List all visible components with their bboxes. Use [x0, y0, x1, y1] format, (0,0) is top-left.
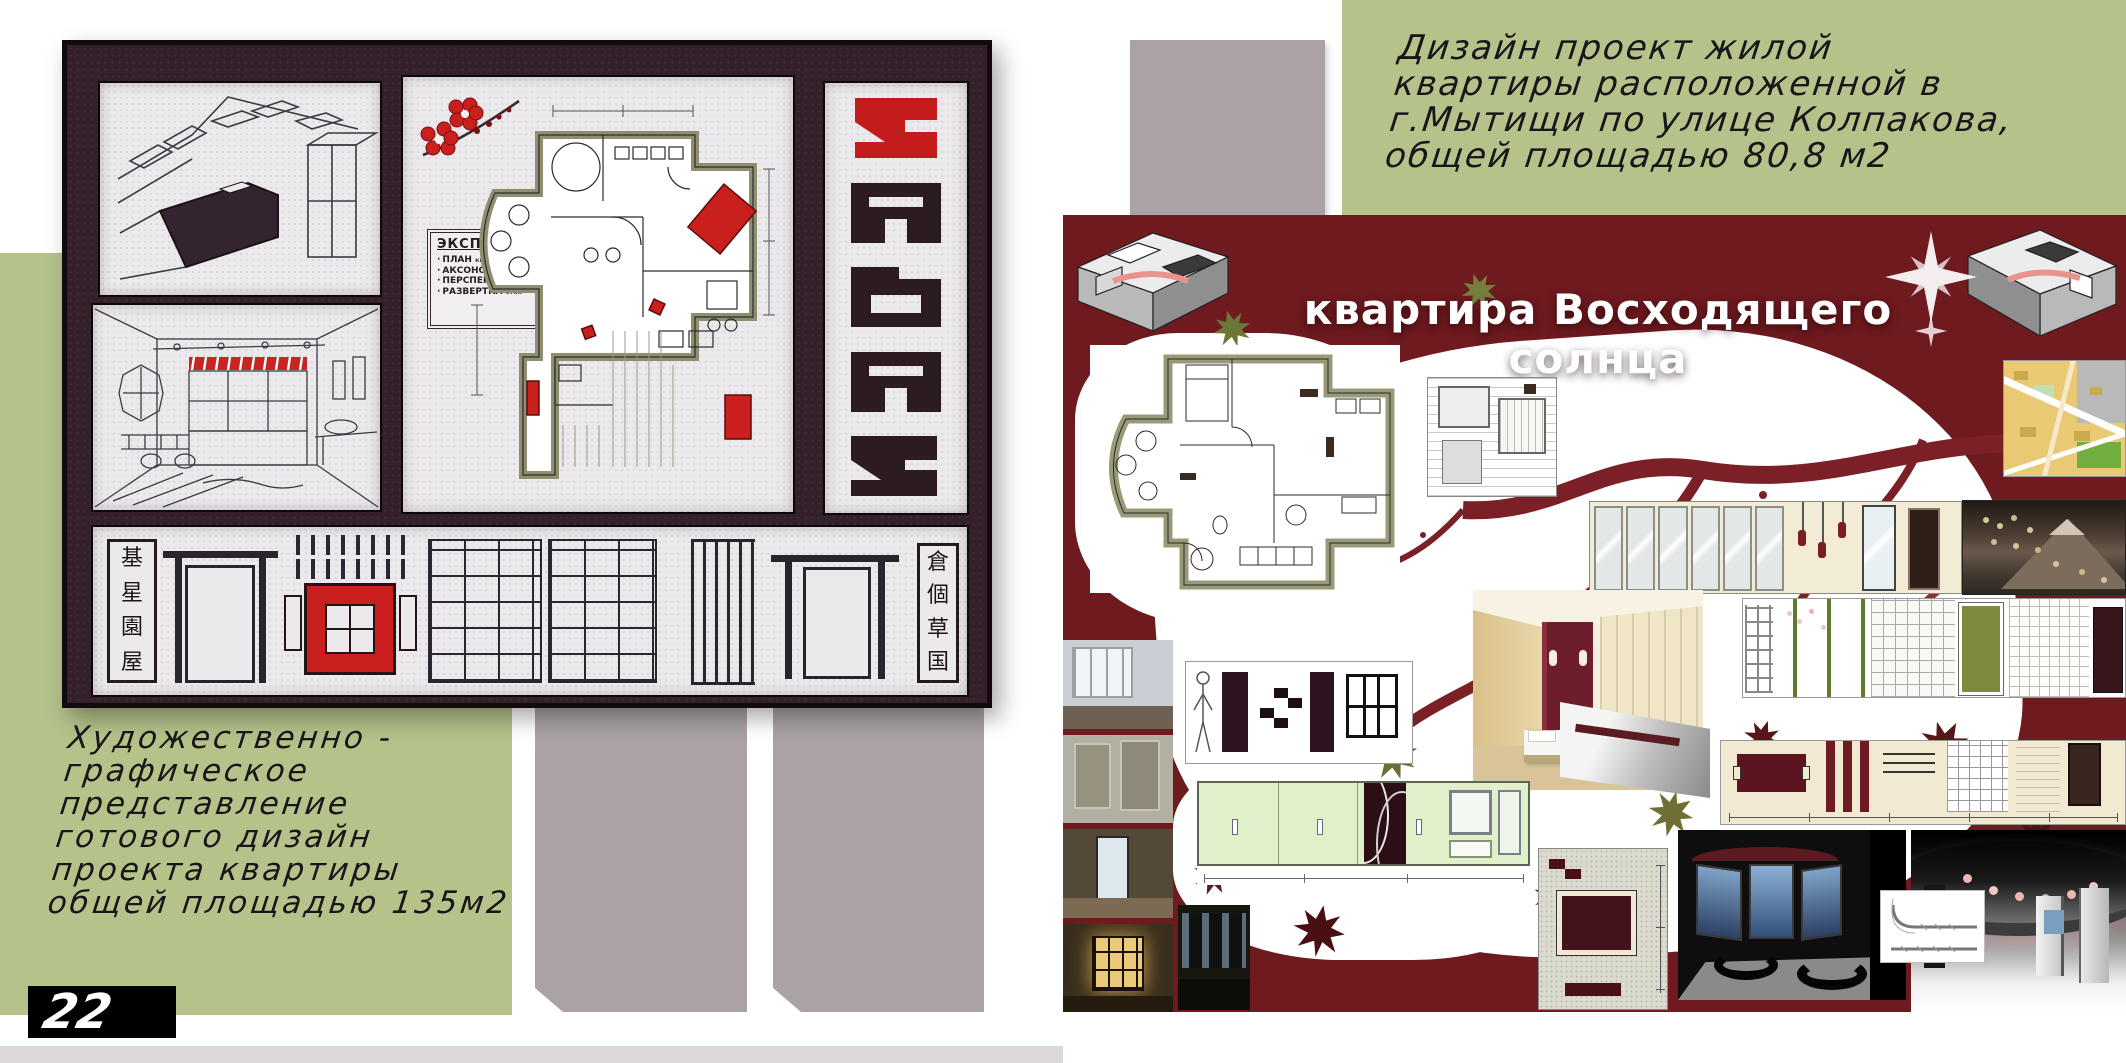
sconce-icon — [1579, 650, 1587, 666]
bay-window-photo — [1178, 905, 1250, 1010]
calligraphy-glyph-icon — [841, 260, 951, 336]
fuji-woodblock-print — [1962, 500, 2126, 595]
sparkle-icon — [1915, 315, 1947, 347]
left-calligraphy-sign: 基 星 園 屋 — [107, 539, 157, 683]
rug-artwork — [1737, 754, 1806, 792]
arch-light — [1963, 874, 1972, 883]
pendant-lamp-icon — [1802, 502, 1804, 530]
dark-door — [1908, 508, 1940, 590]
slatted-wall-elevation — [691, 539, 755, 685]
calligraphy-glyph-icon — [841, 345, 951, 421]
dark-door — [1310, 672, 1334, 752]
window-pane — [1749, 864, 1795, 939]
dimension-line — [1729, 817, 2117, 818]
page-number-box: 22 — [28, 986, 176, 1038]
bamboo-art-panel — [1777, 599, 1867, 697]
street-elevation-strip: 基 星 園 屋 — [93, 527, 967, 695]
kitchen-axonometric-panel — [100, 83, 380, 295]
axonometric-cutaway-render — [1068, 225, 1243, 345]
bathroom-perspective-panel — [93, 305, 380, 510]
calligraphy-glyph-icon — [841, 429, 951, 505]
bathroom-perspective-sketch — [93, 305, 380, 510]
lattice-wall-elevation — [548, 539, 657, 683]
blossom-dots — [1983, 517, 1989, 523]
right-calligraphy-sign: 倉 個 草 国 — [917, 543, 959, 683]
dark-door — [1222, 672, 1248, 752]
gray-block-bottom-left — [535, 700, 747, 1012]
curved-sofa — [1797, 958, 1867, 990]
wardrobe-elevation-strip — [1589, 501, 1962, 594]
location-map — [2003, 360, 2126, 477]
window-pane — [1801, 865, 1842, 942]
olive-door — [1959, 603, 2003, 695]
dark-door — [2068, 743, 2100, 806]
red-roof-square — [304, 583, 396, 675]
site-photos-column — [1063, 640, 1173, 1012]
bamboo-shoji-elevation — [1742, 598, 2126, 698]
mirror-frame — [1449, 790, 1492, 836]
collage: квартира Восходящего солнца — [1063, 215, 2126, 1012]
portfolio-spread: ЭКСПЛИКАЦИЯ ПЛАН квартиры № 15 АКСОНОМЕТ… — [0, 0, 2126, 1063]
pavilion-elevation — [288, 533, 413, 687]
site-photo — [1063, 829, 1173, 918]
page-edge-shadow — [0, 1046, 1063, 1063]
main-floor-plan — [1090, 345, 1400, 593]
lattice-wall-elevation — [428, 539, 542, 683]
gate-elevation — [173, 537, 268, 683]
sconce-icon — [1549, 650, 1557, 666]
vertical-calligraphy-panel — [825, 83, 967, 513]
floor-plan-panel: ЭКСПЛИКАЦИЯ ПЛАН квартиры № 15 АКСОНОМЕТ… — [403, 77, 793, 512]
curved-sofa — [1714, 950, 1778, 980]
presentation-board: ЭКСПЛИКАЦИЯ ПЛАН квартиры № 15 АКСОНОМЕТ… — [62, 40, 992, 708]
ceiling-plan — [1427, 377, 1557, 497]
site-photo — [1063, 640, 1173, 729]
pendant-lamp-icon — [1822, 502, 1824, 542]
hall-elevation-strip — [1185, 661, 1413, 764]
maroon-door — [2093, 607, 2123, 693]
calligraphy-glyph-red-icon — [841, 91, 951, 167]
window-small — [2044, 910, 2063, 934]
dimension-line — [1204, 878, 1524, 879]
site-photo — [1063, 735, 1173, 824]
mirror-door — [1862, 505, 1896, 591]
axonometric-cutaway-render — [1960, 220, 2126, 355]
bedroom-wall-elevations — [1720, 740, 2126, 825]
window-grid — [1346, 674, 1398, 738]
gate-elevation — [781, 541, 889, 679]
green-wardrobe-elevation — [1197, 781, 1530, 885]
ceiling-detail-drawing — [1880, 890, 1985, 963]
site-photo — [1063, 924, 1173, 1013]
page-number: 22 — [38, 984, 117, 1040]
left-caption: Художественно - графическое представлени… — [46, 722, 520, 920]
pendant-lamp-icon — [1842, 502, 1844, 522]
step-pattern — [1274, 688, 1288, 698]
apartment-floor-plan-drawing — [463, 95, 783, 500]
gray-block-bottom-right — [773, 700, 984, 1012]
dark-center-panel — [1364, 783, 1407, 864]
human-figure-sketch — [1192, 670, 1214, 756]
night-lounge-render — [1678, 830, 1906, 1000]
tv-wall-elevation — [1538, 848, 1668, 1010]
calligraphy-glyph-icon — [841, 176, 951, 252]
kitchen-axonometric-sketch — [100, 83, 380, 295]
maple-leaf-icon — [1289, 901, 1349, 961]
window-pane — [1696, 864, 1742, 942]
right-caption: Дизайн проект жилой квартиры расположенн… — [1383, 30, 2121, 174]
gray-block-top — [1130, 40, 1325, 215]
sparkle-icon — [1885, 231, 1977, 323]
